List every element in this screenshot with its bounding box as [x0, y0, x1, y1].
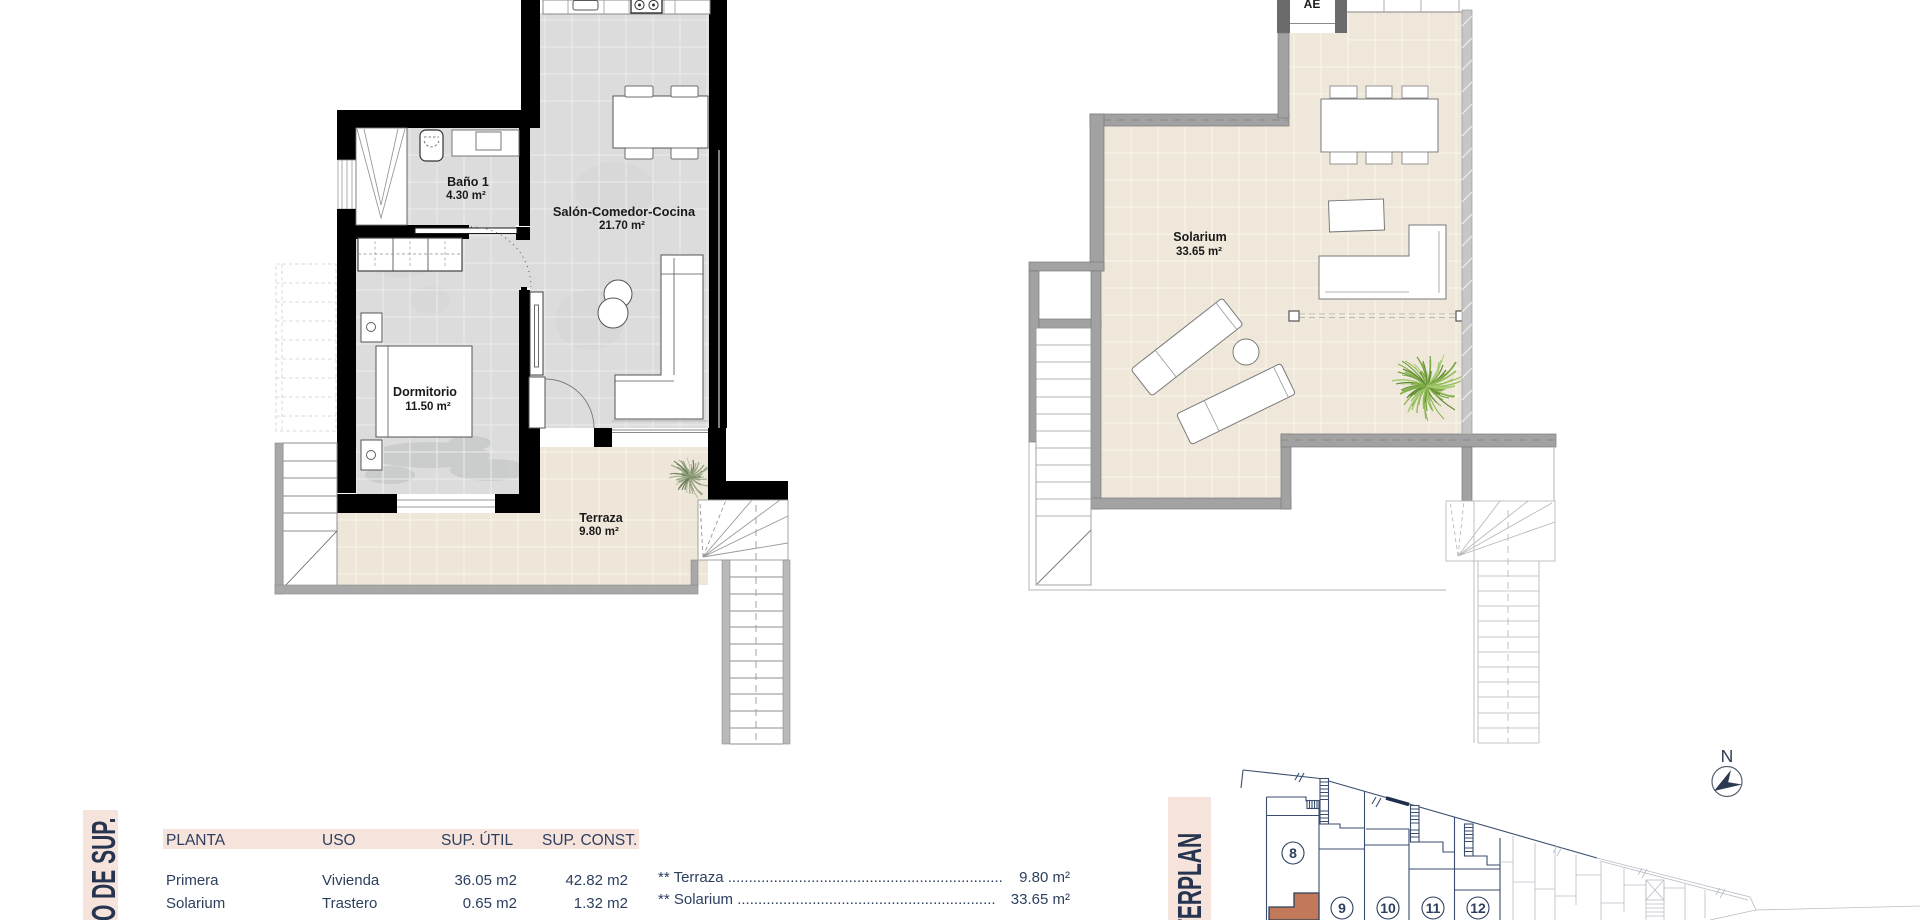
svg-text:4.30 m²: 4.30 m² [446, 190, 486, 202]
svg-text:O DE SUP.: O DE SUP. [85, 818, 122, 920]
svg-text:21.70 m²: 21.70 m² [599, 220, 645, 232]
svg-text:33.65 m²: 33.65 m² [1176, 246, 1222, 258]
svg-text:11: 11 [1426, 900, 1441, 916]
svg-text:9.80 m²: 9.80 m² [1019, 869, 1070, 886]
svg-text:Primera: Primera [166, 872, 219, 889]
svg-text:0.65 m2: 0.65 m2 [463, 895, 517, 912]
svg-text:11.50 m²: 11.50 m² [405, 401, 451, 413]
svg-text:Terraza: Terraza [579, 511, 624, 525]
svg-text:Vivienda: Vivienda [322, 872, 380, 889]
svg-text:10: 10 [1380, 900, 1396, 916]
svg-text:Dormitorio: Dormitorio [393, 385, 457, 399]
svg-text:Solarium: Solarium [166, 895, 225, 912]
svg-text:AE: AE [1304, 0, 1321, 11]
svg-text:12: 12 [1470, 900, 1486, 916]
svg-text:SUP. ÚTIL: SUP. ÚTIL [441, 832, 513, 849]
svg-text:SUP. CONST.: SUP. CONST. [542, 832, 637, 849]
svg-text:1.32 m2: 1.32 m2 [574, 895, 628, 912]
svg-text:Salón-Comedor-Cocina: Salón-Comedor-Cocina [553, 204, 696, 219]
svg-text:9.80 m²: 9.80 m² [579, 526, 619, 538]
svg-text:Solarium: Solarium [1173, 230, 1227, 244]
svg-text:36.05 m2: 36.05 m2 [454, 872, 517, 889]
svg-text:** Solarium ..................: ** Solarium ............................… [658, 891, 996, 908]
svg-text:33.65 m²: 33.65 m² [1011, 891, 1070, 908]
svg-text:USO: USO [322, 832, 356, 849]
svg-text:Trastero: Trastero [322, 895, 377, 912]
svg-text:8: 8 [1289, 845, 1297, 861]
svg-text:N: N [1721, 746, 1734, 766]
svg-text:42.82 m2: 42.82 m2 [565, 872, 628, 889]
svg-text:TERPLAN: TERPLAN [1171, 833, 1208, 920]
svg-text:Baño 1: Baño 1 [447, 175, 489, 189]
svg-text:9: 9 [1338, 900, 1346, 916]
svg-text:** Terraza ...................: ** Terraza .............................… [658, 869, 1003, 886]
svg-text:PLANTA: PLANTA [166, 832, 226, 849]
